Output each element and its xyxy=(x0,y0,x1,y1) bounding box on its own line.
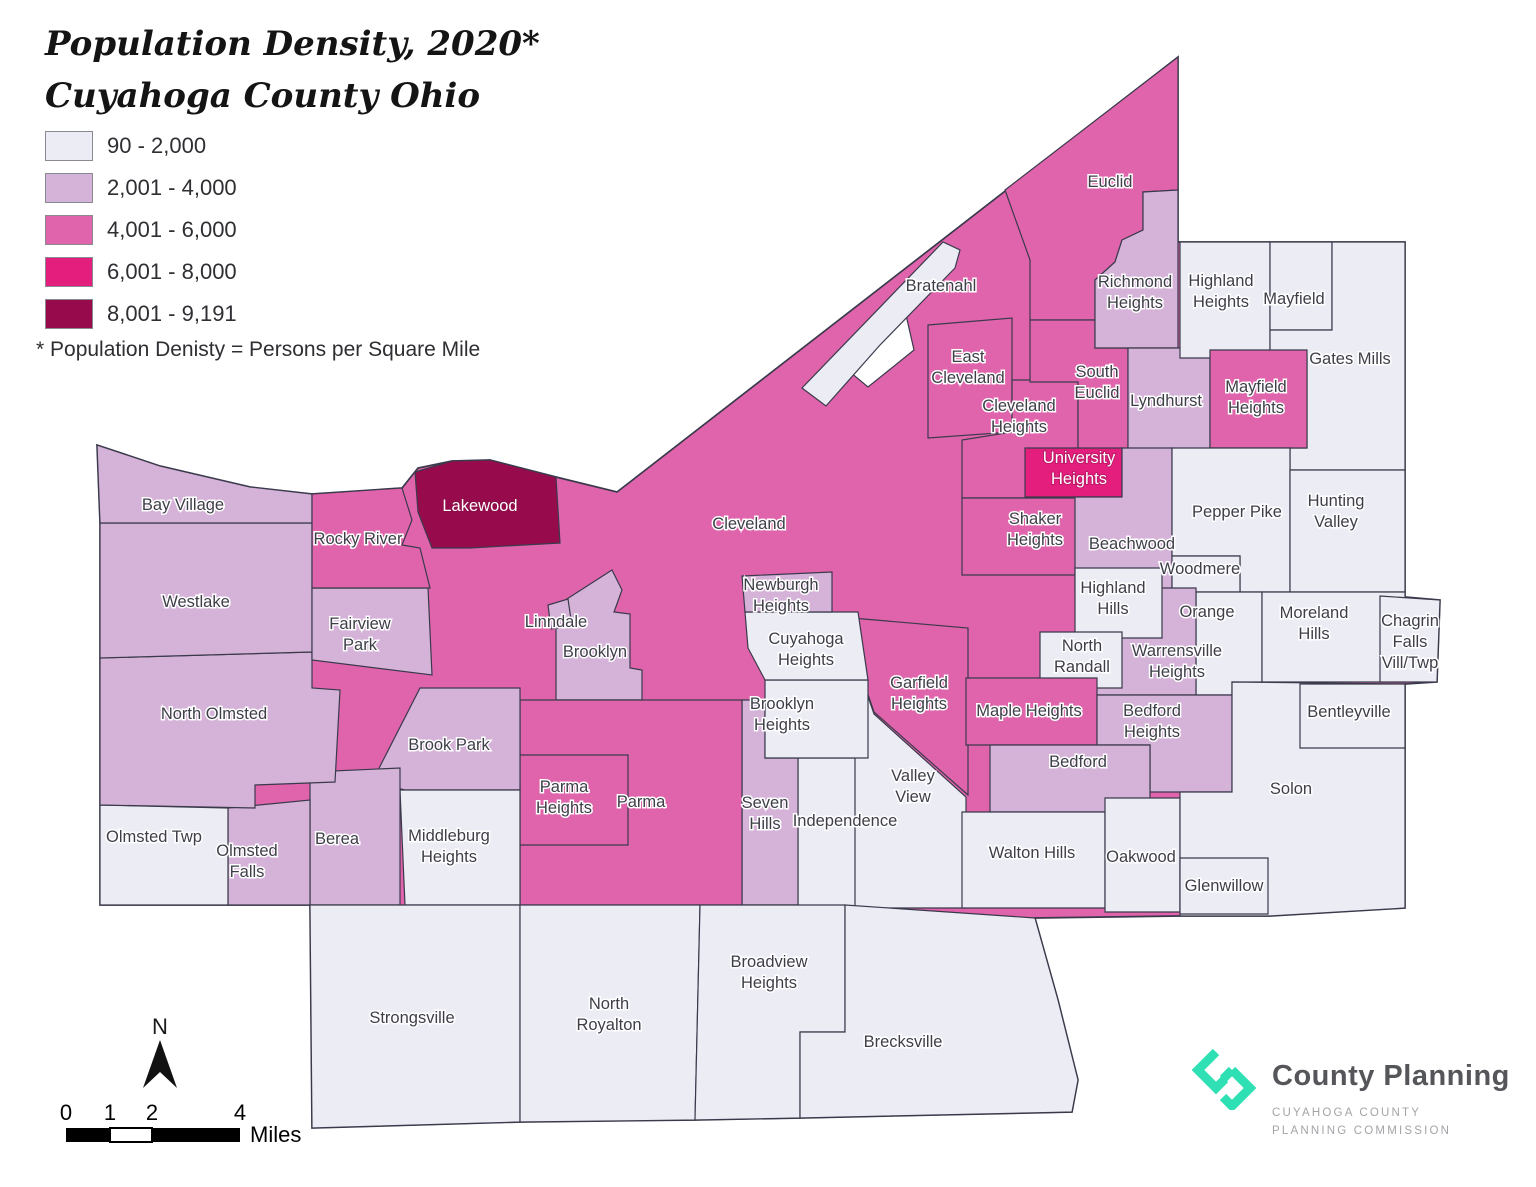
region-label-bay-village: Bay Village xyxy=(142,496,224,514)
legend-swatch-4 xyxy=(45,257,93,287)
logo-subtitle-2: PLANNING COMMISSION xyxy=(1272,1125,1510,1137)
region-westlake xyxy=(100,523,312,658)
region-label-bratenahl: Bratenahl xyxy=(906,277,977,295)
region-label-woodmere: Woodmere xyxy=(1160,560,1240,578)
region-label-mayfield: Mayfield xyxy=(1263,290,1324,308)
region-label-brecksville: Brecksville xyxy=(864,1033,943,1051)
region-label-berea: Berea xyxy=(315,830,360,848)
region-label-cleveland: Cleveland xyxy=(712,515,785,533)
scale-seg-1 xyxy=(66,1128,110,1142)
scale-tick-0: 0 xyxy=(60,1100,72,1125)
legend-label-2: 2,001 - 4,000 xyxy=(107,175,237,201)
scale-tick-3: 4 xyxy=(234,1100,246,1125)
region-independence xyxy=(798,758,855,908)
legend-label-3: 4,001 - 6,000 xyxy=(107,217,237,243)
region-label-strongsville: Strongsville xyxy=(369,1009,454,1027)
map-subtitle: Cuyahoga County Ohio xyxy=(45,70,540,122)
scale-tick-2: 2 xyxy=(146,1100,158,1125)
scale-bar: 0 1 2 4 Miles xyxy=(60,1100,301,1147)
region-label-lyndhurst: Lyndhurst xyxy=(1130,392,1202,410)
region-label-rocky-river: Rocky River xyxy=(314,530,403,548)
footnote: * Population Denisty = Persons per Squar… xyxy=(36,338,480,362)
legend-swatch-5 xyxy=(45,299,93,329)
region-label-brook-park: Brook Park xyxy=(408,736,490,754)
region-label-linndale: Linndale xyxy=(525,613,587,631)
region-olmsted-twp xyxy=(100,805,228,905)
region-label-solon: Solon xyxy=(1270,780,1312,798)
title-block: Population Density, 2020* Cuyahoga Count… xyxy=(45,18,540,122)
region-label-lakewood: Lakewood xyxy=(442,497,517,515)
legend-swatch-1 xyxy=(45,131,93,161)
legend-row: 6,001 - 8,000 xyxy=(45,256,237,287)
region-label-orange: Orange xyxy=(1179,603,1234,621)
region-label-olmsted-twp: Olmsted Twp xyxy=(106,828,202,846)
region-hunting-valley xyxy=(1290,470,1405,592)
logo-subtitle-1: CUYAHOGA COUNTY xyxy=(1272,1107,1510,1119)
legend: 90 - 2,000 2,001 - 4,000 4,001 - 6,000 6… xyxy=(45,130,237,340)
legend-row: 8,001 - 9,191 xyxy=(45,298,237,329)
region-north-royalton xyxy=(520,905,700,1122)
region-label-beachwood: Beachwood xyxy=(1089,535,1175,553)
logo-chain-icon xyxy=(1192,1048,1256,1110)
region-label-euclid: Euclid xyxy=(1088,173,1133,191)
region-label-oakwood: Oakwood xyxy=(1106,848,1176,866)
region-label-gates-mills: Gates Mills xyxy=(1309,350,1391,368)
region-label-parma: Parma xyxy=(617,793,666,811)
legend-row: 4,001 - 6,000 xyxy=(45,214,237,245)
region-label-bedford: Bedford xyxy=(1049,753,1107,771)
logo-name: County Planning xyxy=(1272,1060,1510,1093)
scale-tick-1: 1 xyxy=(104,1100,116,1125)
county-planning-logo: County Planning CUYAHOGA COUNTY PLANNING… xyxy=(1192,1048,1510,1137)
legend-label-1: 90 - 2,000 xyxy=(107,133,206,159)
region-label-walton-hills: Walton Hills xyxy=(989,844,1076,862)
scale-seg-3 xyxy=(152,1128,240,1142)
legend-label-4: 6,001 - 8,000 xyxy=(107,259,237,285)
legend-row: 2,001 - 4,000 xyxy=(45,172,237,203)
legend-swatch-3 xyxy=(45,215,93,245)
region-label-bentleyville: Bentleyville xyxy=(1307,703,1390,721)
region-label-pepper-pike: Pepper Pike xyxy=(1192,503,1282,521)
map-title: Population Density, 2020* xyxy=(45,18,540,70)
region-label-independence: Independence xyxy=(793,812,898,830)
logo-texts: County Planning CUYAHOGA COUNTY PLANNING… xyxy=(1272,1048,1510,1137)
north-arrow-label: N xyxy=(152,1014,168,1039)
scale-unit-label: Miles xyxy=(250,1122,301,1147)
map-page: ClevelandEuclidBratenahlEastClevelandCle… xyxy=(0,0,1536,1187)
region-label-maple-heights: Maple Heights xyxy=(976,702,1081,720)
legend-swatch-2 xyxy=(45,173,93,203)
legend-row: 90 - 2,000 xyxy=(45,130,237,161)
region-label-brooklyn: Brooklyn xyxy=(563,643,627,661)
region-label-north-olmsted: North Olmsted xyxy=(161,705,267,723)
region-label-glenwillow: Glenwillow xyxy=(1185,877,1264,895)
region-label-westlake: Westlake xyxy=(162,593,230,611)
region-mayfield xyxy=(1270,242,1332,330)
legend-label-5: 8,001 - 9,191 xyxy=(107,301,237,327)
scale-seg-2 xyxy=(110,1128,152,1142)
north-arrow-icon xyxy=(143,1040,177,1088)
north-arrow: N xyxy=(143,1014,177,1088)
